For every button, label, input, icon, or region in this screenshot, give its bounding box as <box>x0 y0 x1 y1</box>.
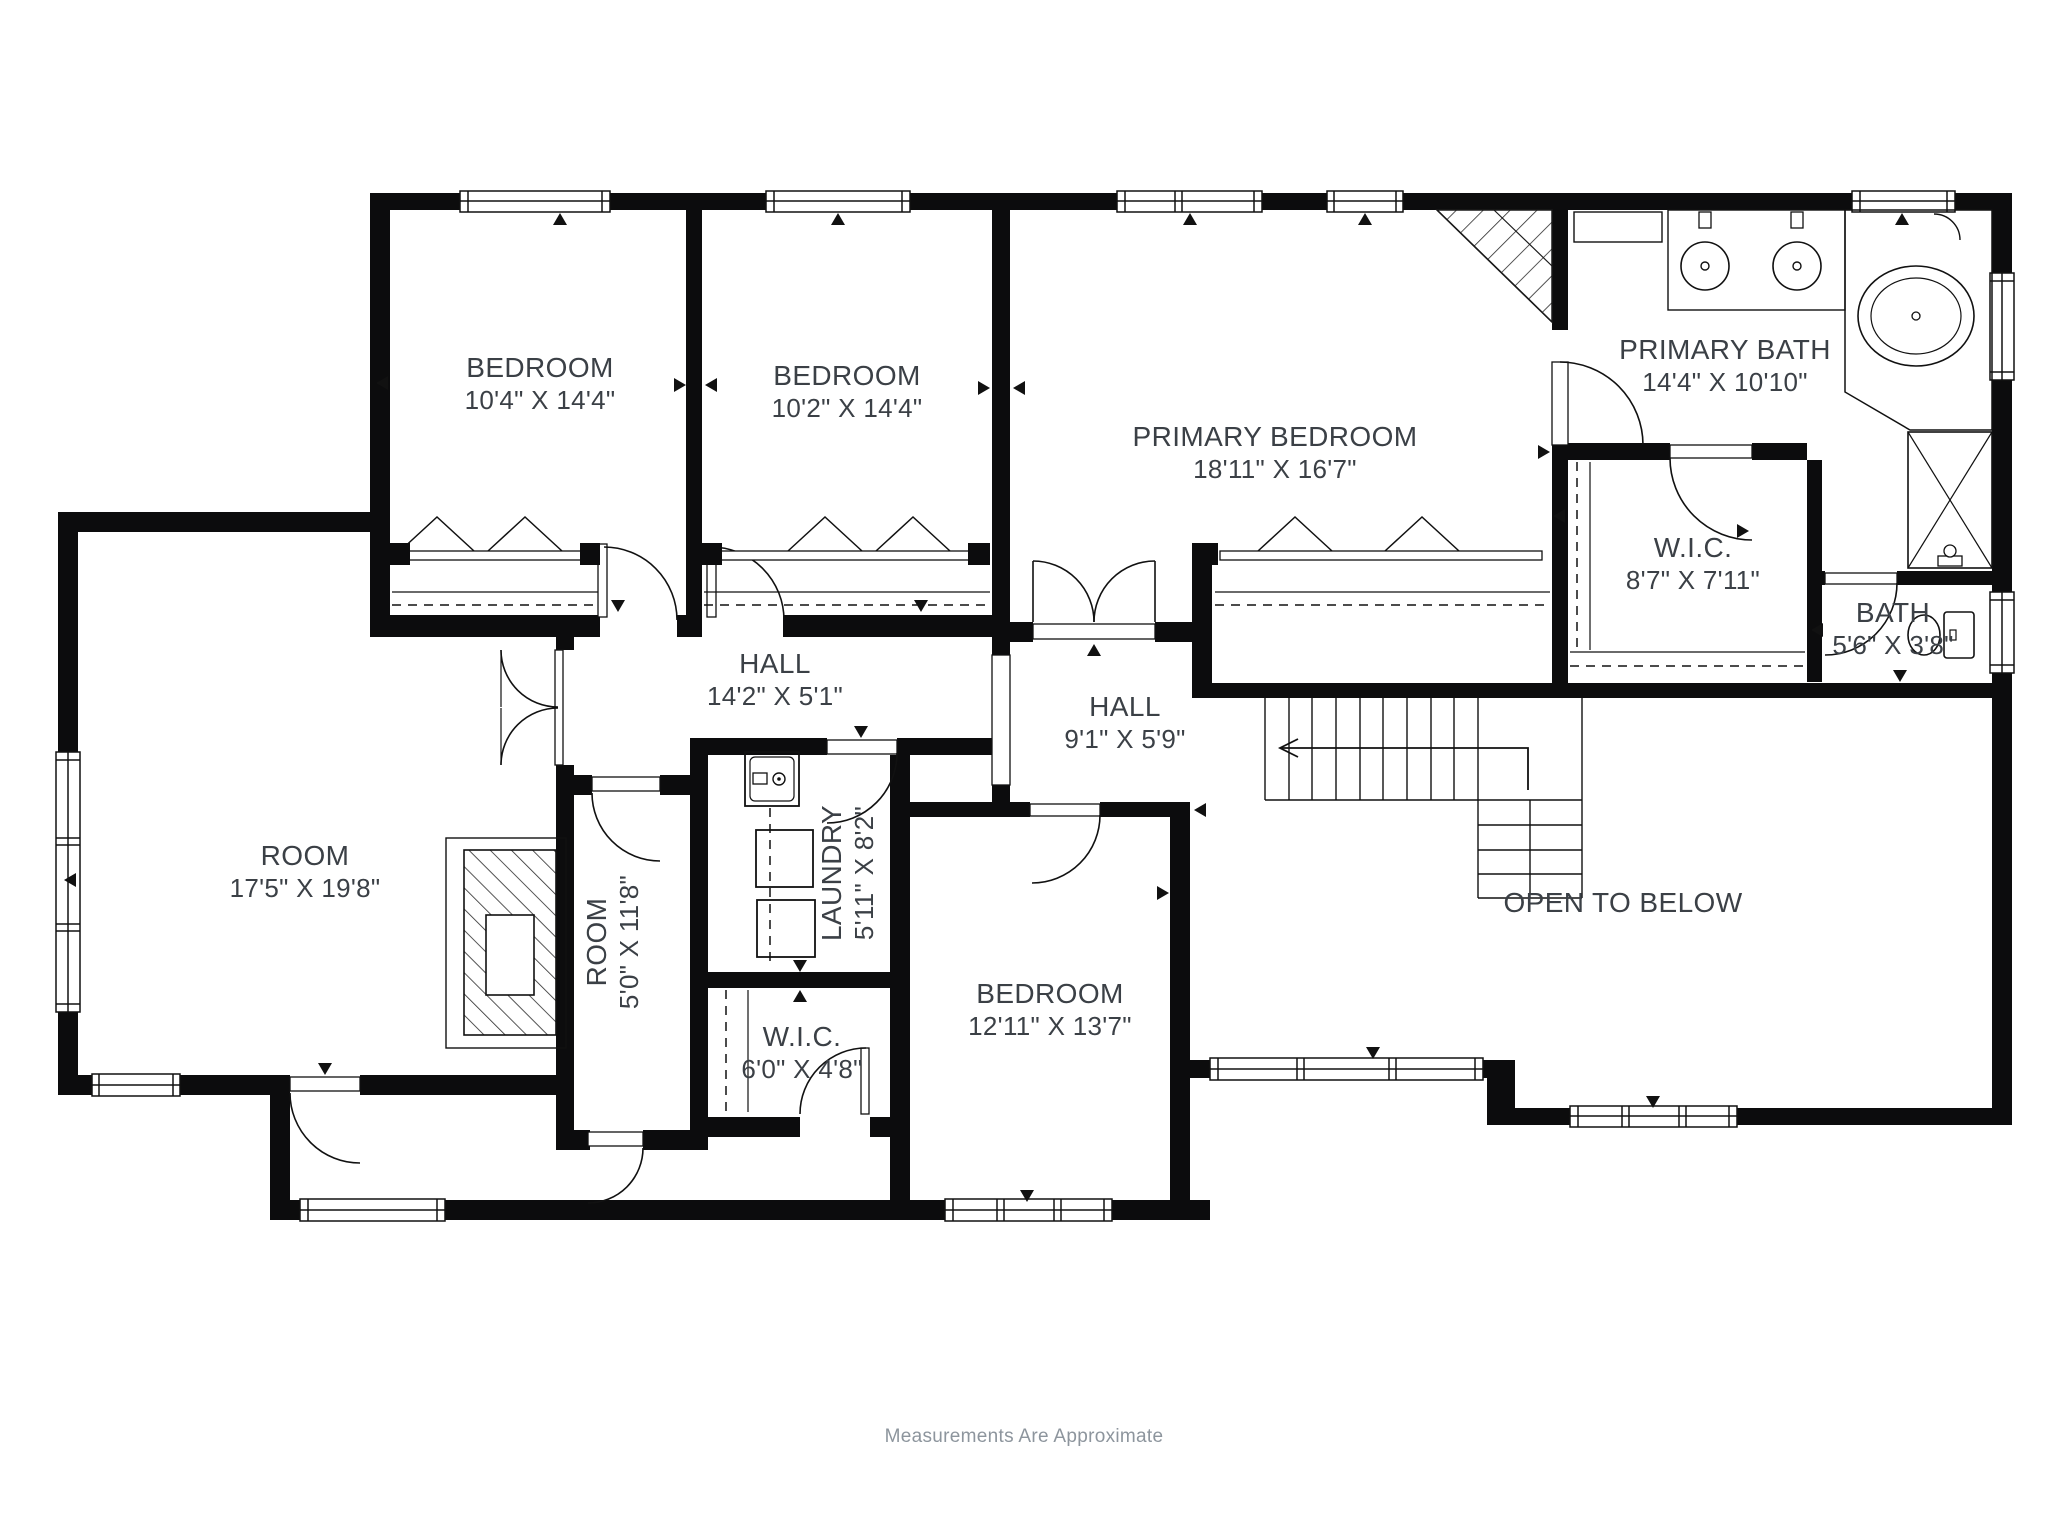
room-label-room-small: ROOM 5'0" X 11'8" <box>581 875 645 1009</box>
room-label-room-large: ROOM 17'5" X 19'8" <box>230 840 381 904</box>
door-room-small-south <box>588 1132 643 1203</box>
room-label-primary-wic: W.I.C. 8'7" X 7'11" <box>1626 532 1760 596</box>
room-label-hall-2: HALL 9'1" X 5'9" <box>1064 691 1185 755</box>
washer-icon <box>756 830 813 887</box>
room-name: LAUNDRY <box>816 805 848 941</box>
room-dims: 5'11" X 8'2" <box>848 805 880 941</box>
room-dims: 8'7" X 7'11" <box>1626 564 1760 596</box>
room-name: BEDROOM <box>772 360 923 392</box>
window <box>1990 273 2014 380</box>
window <box>766 191 910 212</box>
bathtub-icon <box>1845 210 1992 430</box>
window <box>1990 592 2014 673</box>
door-vestibule <box>290 1077 360 1163</box>
vanity-sinks-icon <box>1668 210 1845 310</box>
closet-primary-bedroom <box>1192 517 1550 605</box>
window <box>1117 191 1262 212</box>
door-room-small-north <box>592 777 660 861</box>
window <box>1570 1106 1737 1127</box>
floor-plan-page: BEDROOM 10'4" X 14'4" BEDROOM 10'2" X 14… <box>0 0 2048 1536</box>
room-label-open-below: OPEN TO BELOW <box>1503 887 1742 919</box>
laundry-sink-icon <box>745 752 799 806</box>
room-name: PRIMARY BEDROOM <box>1132 421 1417 453</box>
double-door-room-large <box>501 650 563 765</box>
staircase <box>1265 698 1582 898</box>
sloped-corner-hatch <box>1437 210 1552 322</box>
window <box>1327 191 1403 212</box>
window <box>945 1199 1112 1221</box>
room-name: W.I.C. <box>741 1021 862 1053</box>
door-bedroom-1 <box>598 544 677 620</box>
room-dims: 6'0" X 4'8" <box>741 1053 862 1085</box>
room-label-primary-bath: PRIMARY BATH 14'4" X 10'10" <box>1619 334 1831 398</box>
room-name: BATH <box>1832 597 1953 629</box>
bath-cabinet <box>1574 212 1662 242</box>
double-door-primary-bedroom <box>1033 561 1155 639</box>
room-label-bath: BATH 5'6" X 3'8" <box>1832 597 1953 661</box>
window <box>300 1199 445 1221</box>
closet-bedroom-1 <box>390 517 600 605</box>
room-name: PRIMARY BATH <box>1619 334 1831 366</box>
room-dims: 5'6" X 3'8" <box>1832 629 1953 661</box>
window <box>1852 191 1955 212</box>
room-dims: 18'11" X 16'7" <box>1132 453 1417 485</box>
window <box>92 1074 180 1096</box>
room-dims: 10'2" X 14'4" <box>772 392 923 424</box>
window <box>1210 1058 1483 1080</box>
room-name: HALL <box>1064 691 1185 723</box>
room-name: OPEN TO BELOW <box>1503 887 1742 919</box>
room-dims: 14'4" X 10'10" <box>1619 366 1831 398</box>
door-bedroom-3 <box>1030 804 1100 883</box>
room-name: W.I.C. <box>1626 532 1760 564</box>
room-name: ROOM <box>230 840 381 872</box>
room-label-bedroom-2: BEDROOM 10'2" X 14'4" <box>772 360 923 424</box>
room-label-hall-main: HALL 14'2" X 5'1" <box>707 648 843 712</box>
floor-plan-drawing <box>0 0 2048 1536</box>
room-dims: 5'0" X 11'8" <box>613 875 645 1009</box>
room-dims: 9'1" X 5'9" <box>1064 723 1185 755</box>
cased-opening-halls <box>992 655 1010 785</box>
shower-icon <box>1908 432 1992 568</box>
dryer-icon <box>757 900 815 957</box>
room-dims: 14'2" X 5'1" <box>707 680 843 712</box>
room-dims: 17'5" X 19'8" <box>230 872 381 904</box>
window <box>460 191 610 212</box>
room-dims: 10'4" X 14'4" <box>465 384 616 416</box>
room-name: BEDROOM <box>465 352 616 384</box>
room-label-bedroom-1: BEDROOM 10'4" X 14'4" <box>465 352 616 416</box>
stair-direction-arrow <box>1280 739 1528 790</box>
room-label-primary-bedroom: PRIMARY BEDROOM 18'11" X 16'7" <box>1132 421 1417 485</box>
room-name: ROOM <box>581 875 613 1009</box>
room-name: BEDROOM <box>968 978 1132 1010</box>
fireplace-icon <box>446 838 566 1048</box>
measurements-disclaimer: Measurements Are Approximate <box>885 1426 1164 1448</box>
room-label-bedroom-3: BEDROOM 12'11" X 13'7" <box>968 978 1132 1042</box>
closet-bedroom-2 <box>702 517 990 605</box>
room-name: HALL <box>707 648 843 680</box>
room-label-wic-small: W.I.C. 6'0" X 4'8" <box>741 1021 862 1085</box>
room-label-laundry: LAUNDRY 5'11" X 8'2" <box>816 805 880 941</box>
room-dims: 12'11" X 13'7" <box>968 1010 1132 1042</box>
